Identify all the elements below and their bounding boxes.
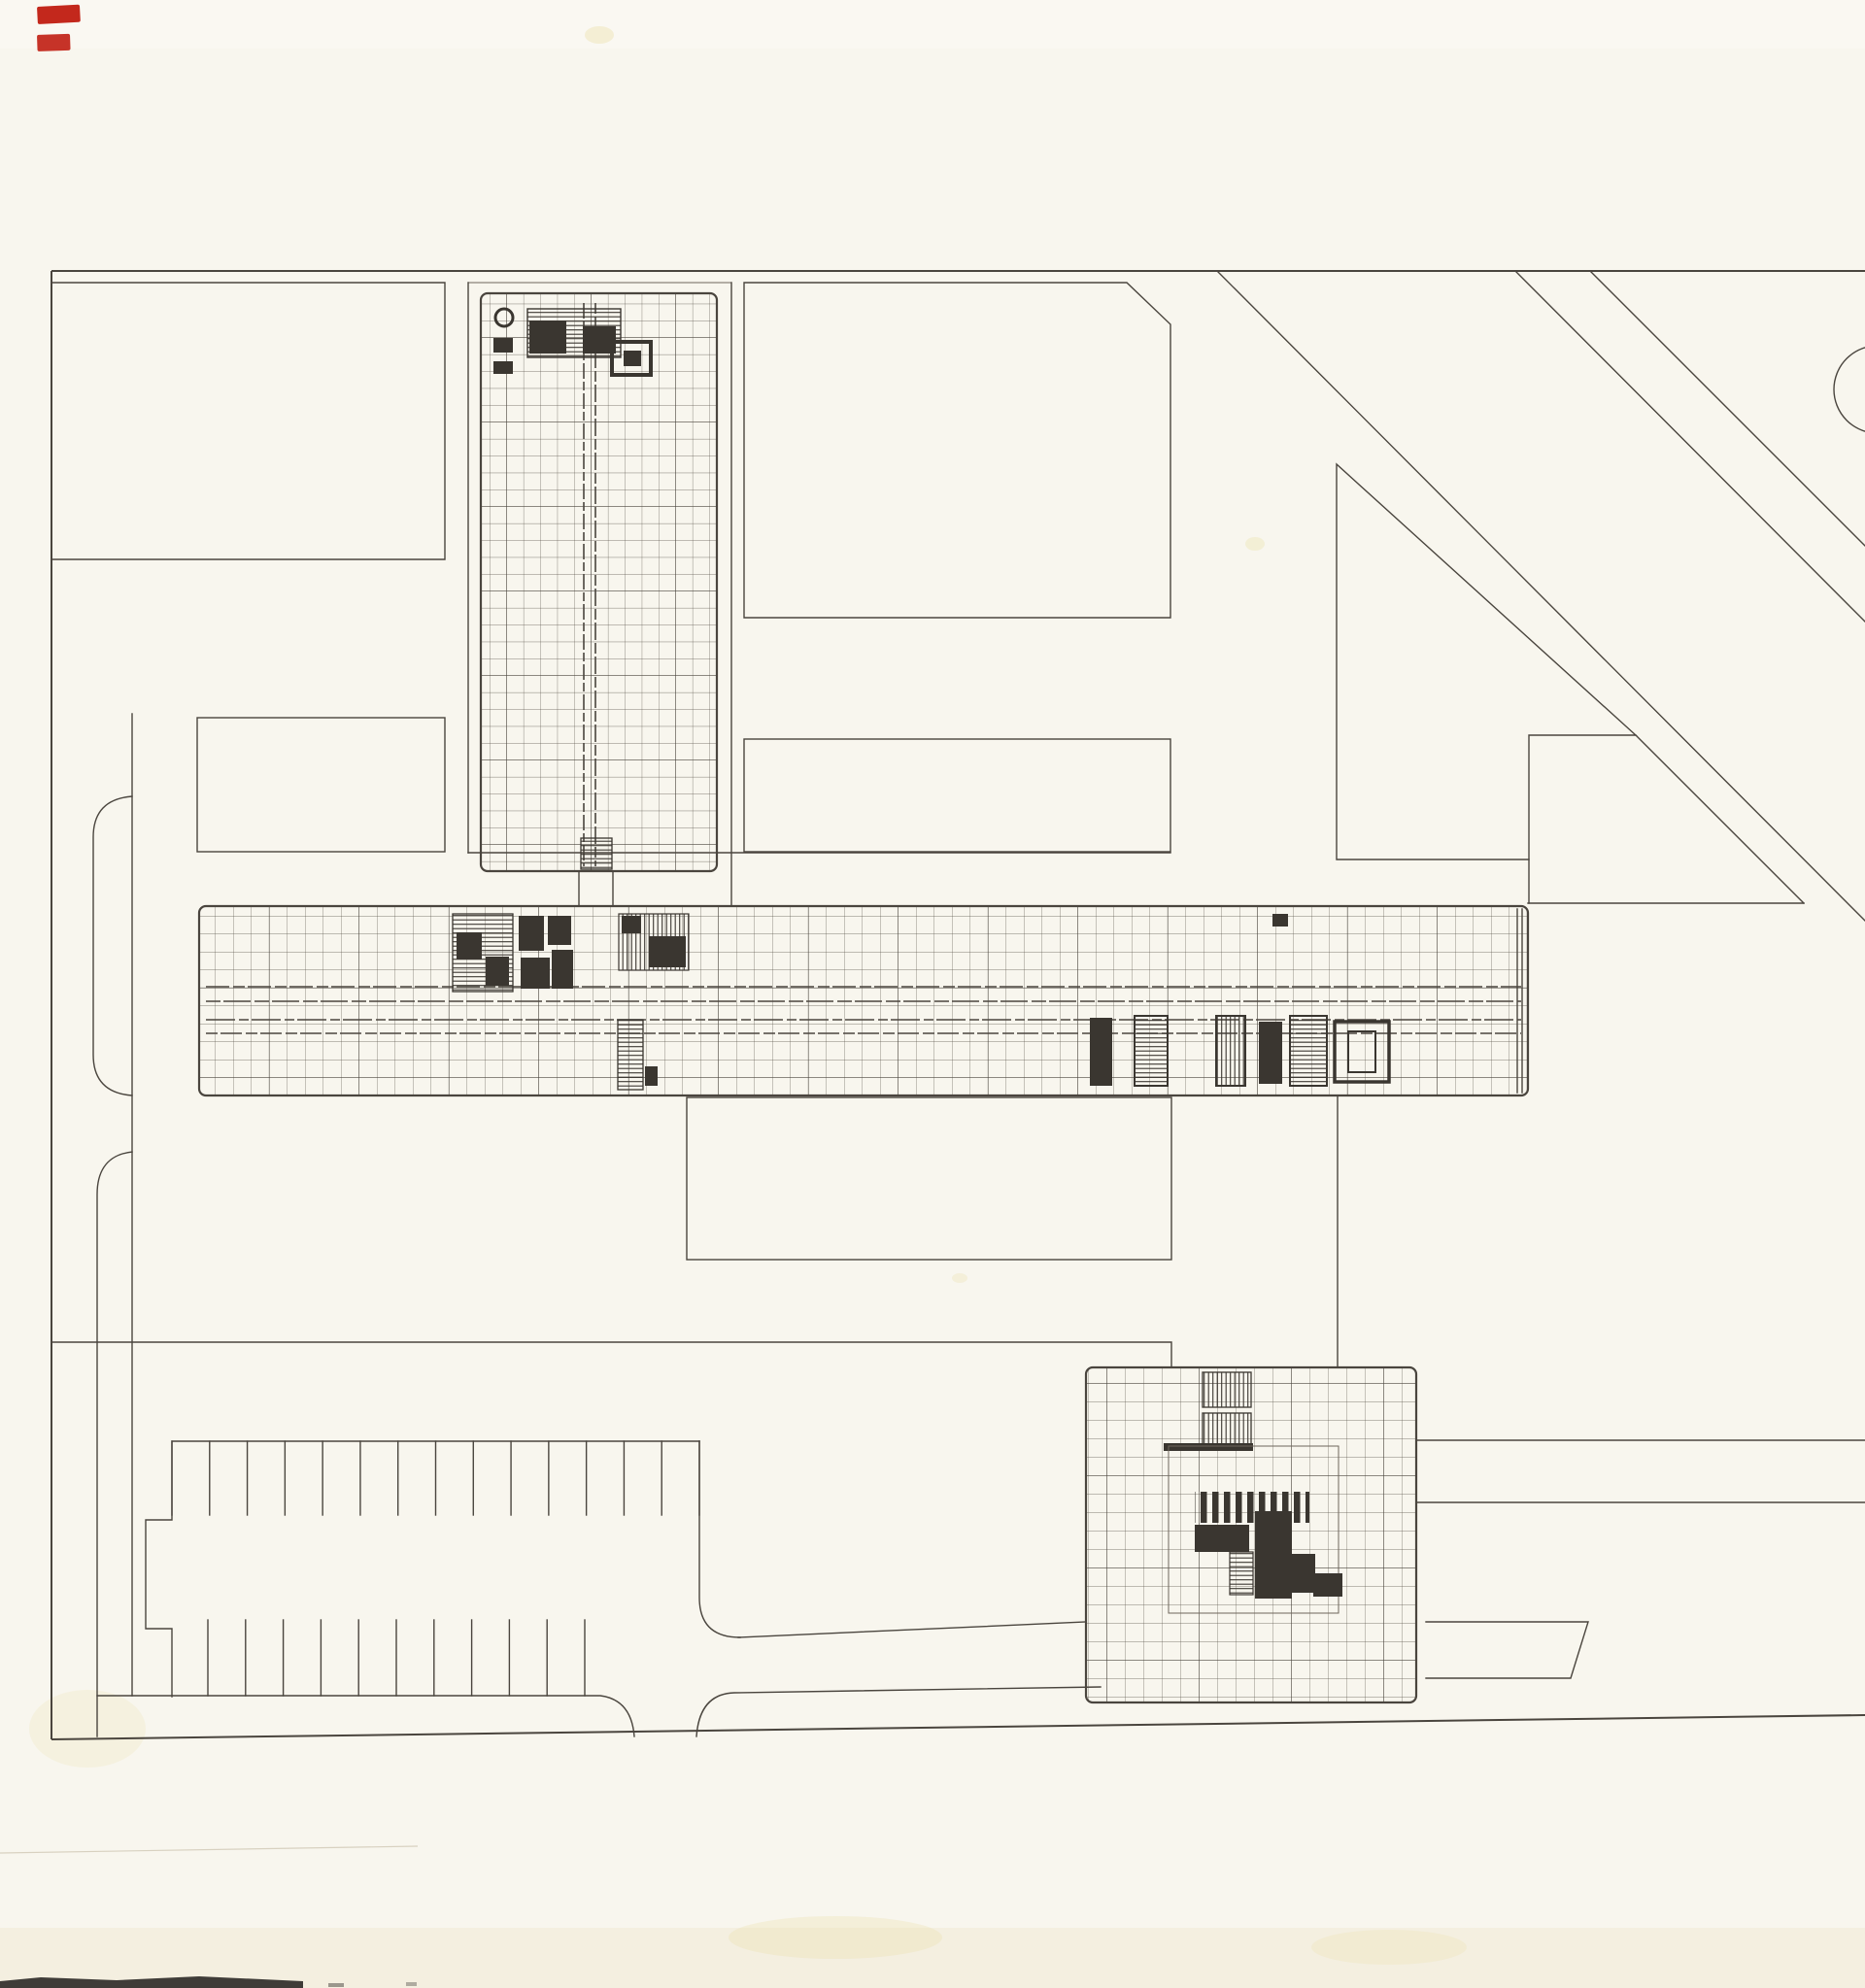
diagonal-avenue: [1217, 271, 1865, 921]
block-northwest: [51, 283, 445, 559]
parking-outline-left: [146, 1441, 699, 1697]
scanned-site-plan-sheet: [0, 0, 1865, 1988]
block-northeast: [744, 283, 1170, 618]
diagonal-strip2-east: [1590, 271, 1865, 546]
cul-de-sac-circle: [1834, 346, 1865, 433]
diagonal-strip2-west: [1515, 271, 1865, 622]
long-slab-building-center: [199, 906, 1528, 1095]
road-stub-east: [1426, 1622, 1588, 1678]
diagonal-edge-outer: [1217, 271, 1865, 921]
south-road-edge: [51, 1715, 1865, 1739]
tall-slab-building-north: [481, 293, 717, 906]
diagonal-edge-inner-low: [1636, 735, 1804, 903]
stair-core-south: [581, 838, 612, 869]
parking-lot-southwest: [97, 1441, 1101, 1736]
block-east: [744, 739, 1170, 852]
plaza-line-west: [738, 1622, 1086, 1637]
parking-entry-curve-east: [699, 1441, 740, 1637]
connector-bridge: [579, 871, 613, 906]
site-plan-drawing: [0, 0, 1865, 1988]
parking-stalls-top-row: [172, 1441, 699, 1515]
block-triangle: [1337, 464, 1636, 859]
curb-island-north: [93, 796, 132, 1095]
block-south-center: [687, 1097, 1171, 1260]
street-to-square-building: [51, 1342, 1171, 1367]
parking-stalls-bottom-row: [208, 1620, 585, 1696]
curb-island-south: [97, 1152, 132, 1736]
square-pavilion-building-southeast: [1086, 1367, 1416, 1702]
parking-bottom-line: [97, 1696, 634, 1736]
fold-crease: [0, 1846, 418, 1853]
block-west: [197, 718, 445, 852]
